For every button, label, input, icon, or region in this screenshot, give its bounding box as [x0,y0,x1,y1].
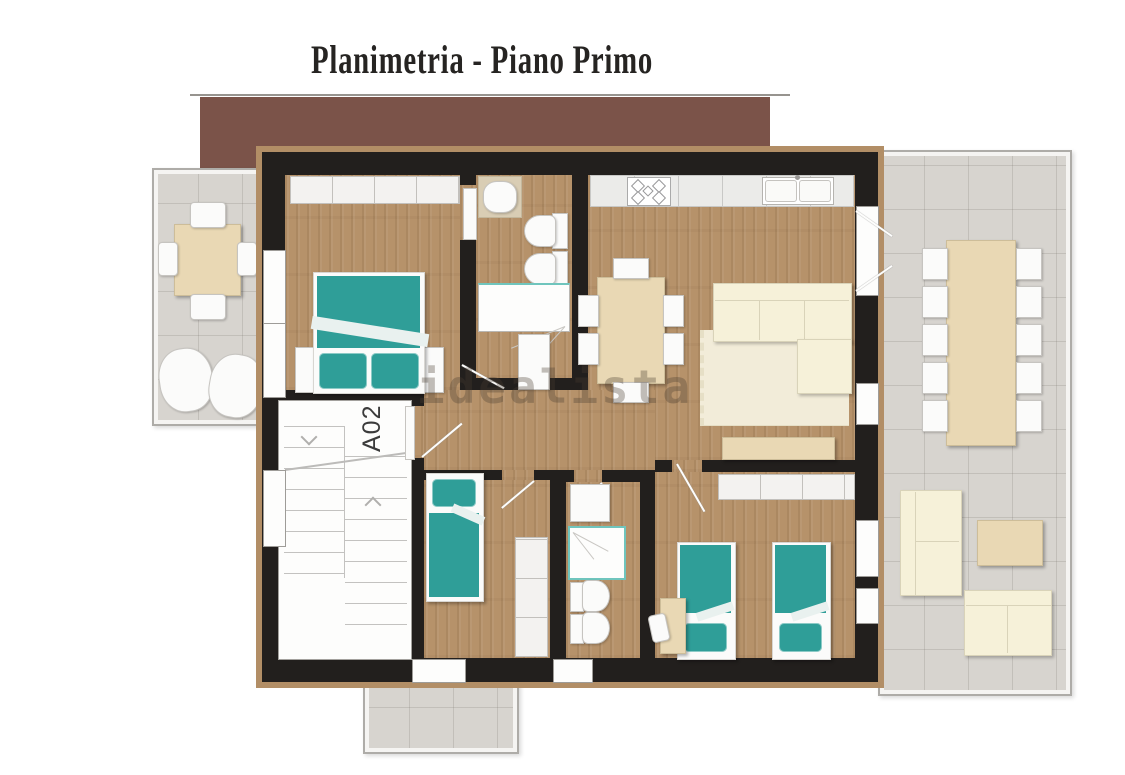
terrace-right [878,150,1072,696]
window-mullion [264,323,285,324]
watermark: idealista [385,360,725,414]
sofa-seam [759,300,760,340]
bed-duvet [429,513,479,597]
single-bed [426,473,484,602]
living-window [856,383,879,425]
shower-glass-line [573,532,595,559]
unit-label: A02 [358,412,398,452]
terrace-chair [1016,362,1042,394]
master-wardrobe [290,176,460,204]
sofa-seam [915,541,959,542]
terrace-chair [922,362,948,394]
sofa-seam [1007,605,1008,653]
twin-bed-2 [772,542,831,660]
door-opening-bath2 [574,470,602,482]
dining-chair [663,295,684,327]
burner-icon [631,191,645,205]
sofa-seam [804,300,805,340]
bed-pillow [779,623,822,652]
bed-pillow [684,623,727,652]
terrace-chair [1016,248,1042,280]
bed-pillow [319,353,367,389]
floor-plan-page: Planimetria - Piano Primo [0,0,1125,775]
terrace-lounge-sofa [900,490,962,596]
balcony-table [174,224,241,296]
shower [478,283,570,332]
twin-wardrobe [718,474,855,500]
sofa-seam [966,605,1052,606]
faucet-icon [795,175,800,180]
balcony-chair [158,242,178,276]
dining-chair [613,258,649,279]
terrace-long-table [946,240,1016,446]
page-title: Planimetria - Piano Primo [288,36,677,83]
burner-icon [652,191,666,205]
dining-chair [578,295,599,327]
balcony-chair [237,242,257,276]
sink-basin [799,180,831,202]
stair-flight [284,426,345,578]
door-opening-single [502,470,534,480]
terrace-coffee-table [977,520,1043,566]
washer [570,484,610,522]
balcony-bottom [363,682,519,754]
bottom-window-1 [412,659,466,683]
terrace-chair [922,324,948,356]
entry-door-leaf [405,406,415,460]
shower-2 [568,526,626,580]
master-balcony-door [263,250,286,398]
terrace-chair [1016,286,1042,318]
title-underline [190,94,790,96]
balcony-chair [190,294,226,320]
twin-window-2 [856,588,879,624]
sofa-l-shape [713,283,852,342]
shower-glass-line [573,532,609,552]
terrace-chair [922,400,948,432]
stairwell-window [263,470,286,547]
stove [627,177,671,206]
terrace-chair [1016,400,1042,432]
kitchen-sink [762,177,834,205]
balcony-left [152,168,267,426]
sink-basin [765,180,797,202]
bath1-door-leaf [463,188,477,240]
toilet-bowl [582,580,610,612]
washbasin [483,181,517,213]
toilet-bowl [524,215,556,247]
sofa-seam [915,492,916,596]
terrace-sofa [964,590,1052,656]
balcony-armchair [155,345,217,416]
twin-window [856,520,879,577]
terrace-chair [1016,324,1042,356]
bottom-window-2 [553,659,593,683]
bidet-bowl [582,612,610,644]
balcony-chair [190,202,226,228]
terrace-chair [922,248,948,280]
sideboard [722,437,835,460]
sofa-chaise [797,339,852,394]
single-wardrobe [515,537,548,657]
stair-flight [345,456,407,642]
nightstand [295,347,314,393]
terrace-chair [922,286,948,318]
bidet-bowl [524,253,556,285]
sofa-seam [715,300,849,301]
